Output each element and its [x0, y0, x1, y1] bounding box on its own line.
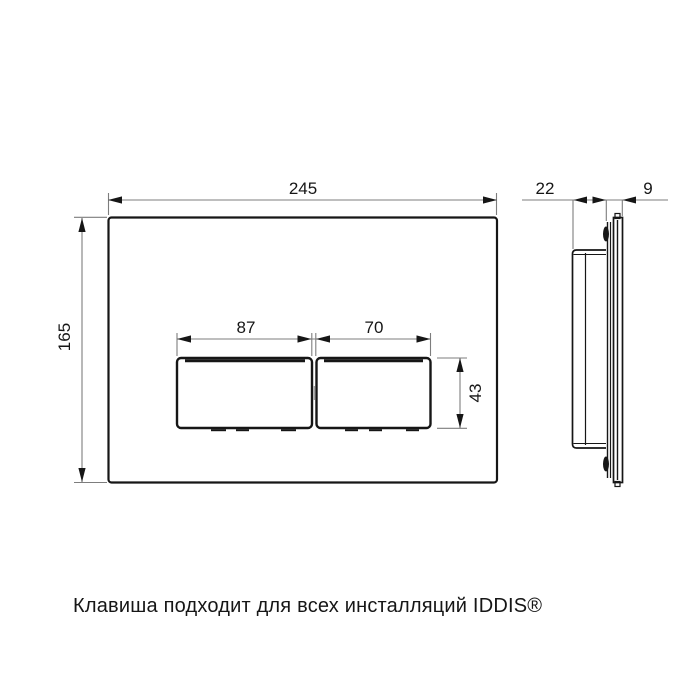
arrowhead-right: [593, 197, 607, 204]
left-button-outline: [177, 358, 312, 428]
arrowhead-right: [417, 335, 431, 342]
arrowhead-left: [177, 335, 191, 342]
mount-clip-top: [603, 227, 609, 242]
arrowhead-down: [456, 414, 463, 428]
arrowhead-left: [316, 335, 330, 342]
depth-label: 22: [536, 179, 555, 198]
dimension-plate-height: 165: [55, 217, 107, 482]
dimension-button-height: 43: [437, 358, 485, 428]
side-view: 22 9: [522, 179, 668, 487]
button-height-label: 43: [466, 384, 485, 403]
arrowhead-up: [78, 218, 85, 232]
right-button-outline: [317, 358, 431, 428]
arrowhead-up: [456, 358, 463, 372]
plate-width-label: 245: [289, 179, 317, 198]
arrowhead-down: [78, 468, 85, 482]
dimension-depth-thickness: 22 9: [522, 179, 668, 249]
compatibility-caption: Клавиша подходит для всех инсталляций ID…: [73, 595, 542, 618]
dimension-button-widths: 87 70: [177, 318, 431, 356]
technical-drawing: 245 165 87 70: [0, 0, 700, 700]
arrowhead-left: [108, 196, 122, 203]
front-view: 245 165 87 70: [55, 179, 497, 483]
mount-clip-bottom: [603, 457, 609, 472]
arrowhead-right: [483, 196, 497, 203]
plate-height-label: 165: [55, 323, 74, 351]
plate-front-outline: [109, 218, 498, 483]
arrowhead-right: [298, 335, 312, 342]
plate-thickness-label: 9: [643, 179, 652, 198]
dimension-plate-width: 245: [108, 179, 497, 215]
arrowhead-left: [623, 197, 637, 204]
right-button-width-label: 70: [365, 318, 384, 337]
housing-profile: [573, 250, 607, 448]
left-button-width-label: 87: [237, 318, 256, 337]
arrowhead-left: [574, 197, 588, 204]
